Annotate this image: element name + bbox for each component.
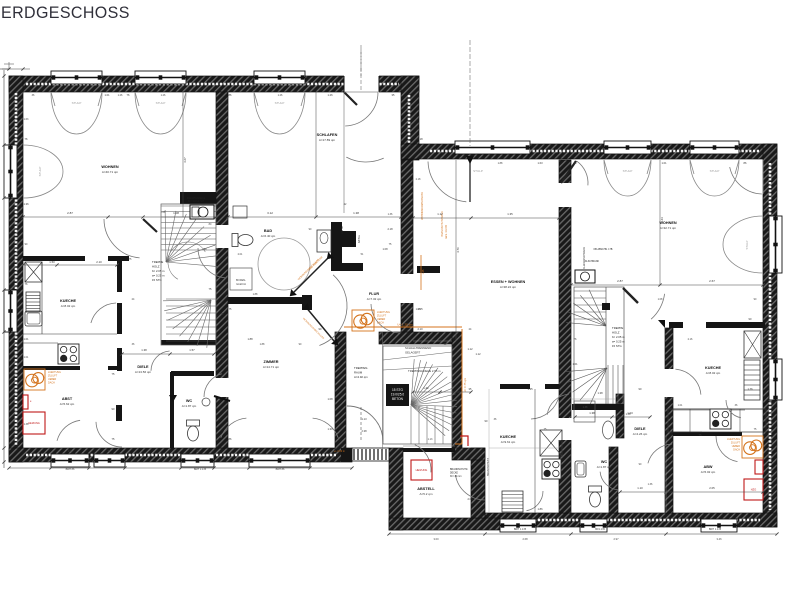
svg-text:STULP: STULP xyxy=(275,101,285,105)
svg-text:3.12: 3.12 xyxy=(267,211,273,215)
svg-text:A=17.89 qm: A=17.89 qm xyxy=(319,138,336,142)
svg-text:1.08: 1.08 xyxy=(161,211,166,214)
svg-text:1.88: 1.88 xyxy=(247,337,253,341)
svg-text:90: 90 xyxy=(319,327,322,331)
svg-text:4.76: 4.76 xyxy=(456,247,460,253)
svg-text:1.38: 1.38 xyxy=(589,411,595,415)
svg-text:1.08: 1.08 xyxy=(658,298,663,301)
svg-text:BETON: BETON xyxy=(392,397,404,401)
svg-text:1.38: 1.38 xyxy=(141,348,147,352)
svg-text:36: 36 xyxy=(132,343,135,346)
svg-text:A=5.2 qm: A=5.2 qm xyxy=(420,492,433,496)
svg-text:E: E xyxy=(30,401,32,403)
svg-text:BRANDSCHUTZ: BRANDSCHUTZ xyxy=(487,457,490,476)
svg-text:BRH 1.135: BRH 1.135 xyxy=(514,528,527,531)
svg-text:24: 24 xyxy=(469,328,472,331)
svg-text:90: 90 xyxy=(639,387,642,391)
svg-text:AB/TR: AB/TR xyxy=(340,226,344,234)
svg-text:90: 90 xyxy=(749,317,752,321)
svg-text:86: 86 xyxy=(744,161,747,165)
svg-text:SCHLAFEN: SCHLAFEN xyxy=(317,133,338,137)
svg-text:TREPPE: TREPPE xyxy=(152,260,163,264)
svg-text:SCHRANK 60T: SCHRANK 60T xyxy=(188,200,205,203)
svg-text:WC: WC xyxy=(601,460,608,464)
svg-text:1.13: 1.13 xyxy=(428,438,433,441)
svg-text:1.88: 1.88 xyxy=(498,162,503,165)
svg-text:76: 76 xyxy=(574,337,577,341)
svg-text:b= 2.05 m: b= 2.05 m xyxy=(612,335,625,339)
svg-text:24: 24 xyxy=(132,298,135,301)
svg-text:2.97: 2.97 xyxy=(613,537,619,541)
svg-text:A=13.56 qm: A=13.56 qm xyxy=(135,370,152,374)
svg-text:51: 51 xyxy=(361,253,364,256)
svg-text:90: 90 xyxy=(299,343,302,346)
svg-text:2.05: 2.05 xyxy=(467,497,473,501)
svg-text:BRH 86: BRH 86 xyxy=(276,468,285,471)
svg-text:19.0/25.0: 19.0/25.0 xyxy=(391,393,405,397)
svg-text:STULP: STULP xyxy=(38,167,42,177)
svg-text:HOLZ: HOLZ xyxy=(152,265,160,269)
svg-text:1.76: 1.76 xyxy=(747,387,753,391)
svg-text:+/- 0.00 m: +/- 0.00 m xyxy=(334,450,345,453)
svg-text:76: 76 xyxy=(127,93,130,97)
svg-text:76: 76 xyxy=(25,282,28,286)
svg-text:U= 1.20 qm: U= 1.20 qm xyxy=(397,323,413,327)
svg-text:BRH 1.135: BRH 1.135 xyxy=(194,468,207,471)
svg-text:1.12: 1.12 xyxy=(467,347,473,351)
svg-text:b= 2.05 m: b= 2.05 m xyxy=(152,269,165,273)
svg-text:1.01: 1.01 xyxy=(661,161,667,165)
svg-text:90: 90 xyxy=(754,298,757,301)
svg-text:AB/TEL: AB/TEL xyxy=(358,234,361,243)
svg-text:2.10: 2.10 xyxy=(96,260,102,264)
svg-text:DIELE: DIELE xyxy=(137,365,149,369)
svg-text:90: 90 xyxy=(25,243,28,246)
svg-text:BODEN-: BODEN- xyxy=(236,278,246,282)
svg-text:1.38: 1.38 xyxy=(353,211,359,215)
svg-text:1.13: 1.13 xyxy=(361,417,367,421)
svg-text:36: 36 xyxy=(494,418,497,421)
svg-text:15 STG: 15 STG xyxy=(612,344,622,348)
svg-text:2.16: 2.16 xyxy=(688,338,693,341)
svg-text:1.51: 1.51 xyxy=(278,450,283,453)
svg-text:STULP: STULP xyxy=(710,169,720,173)
svg-text:2.87: 2.87 xyxy=(67,211,73,215)
svg-text:DACH: DACH xyxy=(48,382,55,385)
svg-text:1.88: 1.88 xyxy=(260,343,265,346)
svg-text:76: 76 xyxy=(574,162,577,165)
svg-text:1.06: 1.06 xyxy=(677,513,683,517)
svg-text:2.01: 2.01 xyxy=(238,253,243,256)
svg-text:75: 75 xyxy=(112,372,115,376)
svg-text:KLEIDERSCHRANK: KLEIDERSCHRANK xyxy=(583,247,586,269)
svg-text:75: 75 xyxy=(209,287,212,291)
svg-text:80: 80 xyxy=(209,223,212,226)
svg-text:A=7.32 qm: A=7.32 qm xyxy=(367,297,382,301)
svg-text:1.57: 1.57 xyxy=(189,348,195,352)
svg-text:A=1.87 qm: A=1.87 qm xyxy=(182,404,197,408)
svg-text:TREPPEN-: TREPPEN- xyxy=(354,366,368,370)
svg-text:1.38: 1.38 xyxy=(597,391,603,395)
svg-text:86: 86 xyxy=(229,437,232,441)
svg-text:1.50: 1.50 xyxy=(49,260,55,264)
svg-text:ABW: ABW xyxy=(703,465,712,469)
svg-text:FLUR: FLUR xyxy=(369,292,379,296)
svg-text:75: 75 xyxy=(389,243,392,246)
svg-text:1.01: 1.01 xyxy=(68,450,73,453)
svg-text:ABST: ABST xyxy=(62,397,73,401)
svg-text:1.26: 1.26 xyxy=(327,93,333,97)
svg-text:BRANDSCHUTZ-: BRANDSCHUTZ- xyxy=(450,468,468,471)
svg-text:A=4.26 qm: A=4.26 qm xyxy=(633,432,648,436)
svg-text:90: 90 xyxy=(309,228,312,231)
svg-text:A=14.71 qm: A=14.71 qm xyxy=(263,365,280,369)
svg-text:STULP: STULP xyxy=(156,101,166,105)
svg-text:1.38: 1.38 xyxy=(583,406,588,409)
svg-text:1.26: 1.26 xyxy=(118,94,123,97)
svg-text:75: 75 xyxy=(544,428,547,431)
svg-text:1.36: 1.36 xyxy=(648,483,653,486)
svg-text:75: 75 xyxy=(129,258,132,261)
svg-text:2.05: 2.05 xyxy=(709,486,715,490)
svg-text:STULP: STULP xyxy=(473,169,483,173)
svg-text:1.36: 1.36 xyxy=(388,213,393,216)
svg-text:1.12: 1.12 xyxy=(475,352,481,356)
svg-text:2.38: 2.38 xyxy=(361,429,367,433)
svg-text:86: 86 xyxy=(229,93,232,97)
svg-text:A=6.40 qm: A=6.40 qm xyxy=(261,234,276,238)
svg-text:2.68: 2.68 xyxy=(522,537,528,541)
svg-text:75: 75 xyxy=(112,437,115,441)
svg-text:1.88: 1.88 xyxy=(253,293,258,296)
svg-text:KUECHE: KUECHE xyxy=(705,366,722,370)
svg-text:BAD: BAD xyxy=(264,229,272,233)
svg-text:WOHNUNGSABSCHLUSS: WOHNUNGSABSCHLUSS xyxy=(421,192,424,220)
svg-text:a= 0.25 m: a= 0.25 m xyxy=(612,340,625,344)
svg-text:1.38: 1.38 xyxy=(626,413,631,416)
svg-text:2.10: 2.10 xyxy=(417,327,423,331)
svg-text:STULP: STULP xyxy=(72,101,82,105)
svg-text:90: 90 xyxy=(204,247,207,251)
svg-text:RAUM: RAUM xyxy=(354,371,363,375)
svg-text:75: 75 xyxy=(754,428,757,431)
svg-text:1.63: 1.63 xyxy=(24,118,29,121)
svg-text:1.22: 1.22 xyxy=(423,386,429,390)
svg-text:1.10: 1.10 xyxy=(637,486,643,490)
svg-text:A=5.02 qm: A=5.02 qm xyxy=(701,470,716,474)
svg-text:86/1.135: 86/1.135 xyxy=(595,528,605,531)
svg-text:SCHALLTRENNEND: SCHALLTRENNEND xyxy=(405,346,431,350)
svg-text:1.01: 1.01 xyxy=(104,93,110,97)
svg-text:A=38.22 qm: A=38.22 qm xyxy=(500,285,517,289)
svg-text:90: 90 xyxy=(639,463,642,466)
svg-text:3.67: 3.67 xyxy=(183,157,187,163)
svg-text:HZG: HZG xyxy=(751,488,756,492)
svg-text:30 / 30 mm: 30 / 30 mm xyxy=(450,476,462,478)
svg-text:2.67: 2.67 xyxy=(709,279,715,283)
svg-text:1.12: 1.12 xyxy=(437,212,443,216)
svg-text:A=4.92 qm: A=4.92 qm xyxy=(354,375,368,379)
svg-text:DACH: DACH xyxy=(733,449,740,452)
svg-text:a= 0.25 m: a= 0.25 m xyxy=(152,274,165,278)
svg-text:1.05: 1.05 xyxy=(422,269,425,274)
svg-text:GLEICH: GLEICH xyxy=(236,282,246,286)
svg-text:GELAGERT: GELAGERT xyxy=(405,351,420,355)
svg-text:A=32.71 qm: A=32.71 qm xyxy=(660,226,677,230)
svg-text:WOHNEN: WOHNEN xyxy=(101,165,119,169)
svg-text:3.00: 3.00 xyxy=(433,537,439,541)
svg-text:1.30: 1.30 xyxy=(327,427,333,431)
svg-text:1.01: 1.01 xyxy=(572,362,578,366)
svg-text:WC: WC xyxy=(186,399,193,403)
svg-text:15 STG: 15 STG xyxy=(152,278,162,282)
svg-text:1.35: 1.35 xyxy=(507,212,513,216)
svg-text:ZIMMER: ZIMMER xyxy=(264,360,279,364)
svg-text:2.87: 2.87 xyxy=(617,279,623,283)
svg-text:STULP: STULP xyxy=(623,169,633,173)
svg-text:1.26: 1.26 xyxy=(161,94,166,97)
svg-text:2.18: 2.18 xyxy=(387,227,393,231)
svg-text:DIELE: DIELE xyxy=(634,427,646,431)
svg-text:1.38: 1.38 xyxy=(24,423,29,426)
svg-text:A=40.71 qm: A=40.71 qm xyxy=(102,170,119,174)
svg-text:1.26: 1.26 xyxy=(278,94,283,97)
svg-text:1.08: 1.08 xyxy=(327,397,333,401)
svg-text:ESSEN + WOHNEN: ESSEN + WOHNEN xyxy=(491,280,526,284)
svg-text:NB.ABSCHN. 17B: NB.ABSCHN. 17B xyxy=(594,248,613,251)
svg-text:WOHNUNGSABSCHLUSS: WOHNUNGSABSCHLUSS xyxy=(302,317,325,340)
svg-text:A=5.62 qm: A=5.62 qm xyxy=(60,402,75,406)
svg-text:2.18: 2.18 xyxy=(417,137,423,141)
svg-text:TREPPE: TREPPE xyxy=(612,326,623,330)
svg-text:KUECHE: KUECHE xyxy=(60,299,77,303)
svg-text:1.01: 1.01 xyxy=(24,356,29,359)
svg-text:KUECHE: KUECHE xyxy=(500,435,517,439)
svg-text:3.46: 3.46 xyxy=(716,537,722,541)
svg-text:A=9.61 qm: A=9.61 qm xyxy=(501,440,516,444)
svg-text:A=1.87 qm: A=1.87 qm xyxy=(597,465,612,469)
svg-text:1.01: 1.01 xyxy=(23,337,29,341)
svg-text:35: 35 xyxy=(392,93,395,97)
svg-text:A=8.02 qm: A=8.02 qm xyxy=(706,371,721,375)
svg-text:DECKE: DECKE xyxy=(450,473,458,475)
svg-text:DACH: DACH xyxy=(377,322,384,325)
svg-text:36: 36 xyxy=(32,94,35,97)
svg-text:1.63: 1.63 xyxy=(537,161,543,165)
svg-text:2.18: 2.18 xyxy=(416,178,421,181)
svg-text:1.05: 1.05 xyxy=(416,308,421,311)
svg-text:1.86: 1.86 xyxy=(537,507,543,511)
svg-text:KLSCHRANK: KLSCHRANK xyxy=(585,260,600,263)
svg-text:BRH 86: BRH 86 xyxy=(66,468,75,471)
svg-text:TREPPENHOEHE 2.65 m: TREPPENHOEHE 2.65 m xyxy=(408,369,441,373)
svg-text:75: 75 xyxy=(229,308,232,311)
svg-text:1.08: 1.08 xyxy=(173,211,179,215)
svg-text:A=8.02 qm: A=8.02 qm xyxy=(61,304,76,308)
svg-text:1.08: 1.08 xyxy=(382,247,388,251)
svg-text:HOLZ: HOLZ xyxy=(612,331,620,335)
svg-text:1.35: 1.35 xyxy=(527,387,533,391)
svg-text:U= 0.75 qm: U= 0.75 qm xyxy=(463,377,467,392)
svg-text:HEIZUNG: HEIZUNG xyxy=(28,421,40,425)
svg-text:ABSTELL: ABSTELL xyxy=(417,487,435,491)
svg-text:mind. REI 90: mind. REI 90 xyxy=(445,224,448,238)
svg-text:90: 90 xyxy=(485,419,488,423)
svg-text:BRH 1.135: BRH 1.135 xyxy=(709,528,722,531)
svg-text:3.44: 3.44 xyxy=(660,217,664,223)
svg-text:76: 76 xyxy=(25,137,28,141)
svg-text:STULP: STULP xyxy=(745,240,749,249)
svg-text:HEIZUNG: HEIZUNG xyxy=(416,468,428,472)
svg-text:1.01: 1.01 xyxy=(678,404,683,407)
svg-text:36: 36 xyxy=(735,404,738,407)
svg-text:35: 35 xyxy=(469,387,472,391)
svg-text:1.36: 1.36 xyxy=(23,202,29,206)
svg-text:90: 90 xyxy=(112,407,115,411)
svg-text:15 STG: 15 STG xyxy=(392,388,404,392)
